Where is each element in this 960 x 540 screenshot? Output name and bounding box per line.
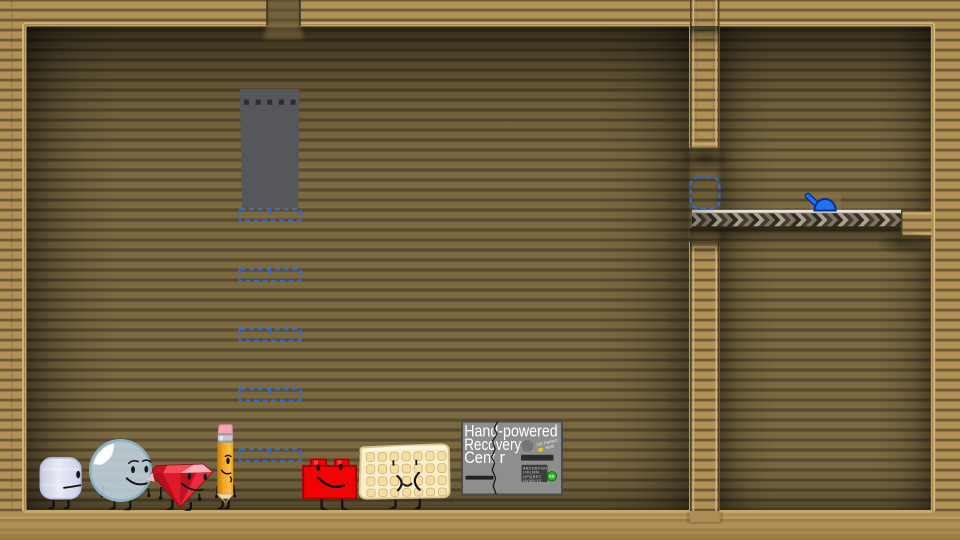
svg-text:r: r — [500, 449, 506, 467]
svg-text:Cent: Cent — [464, 449, 495, 467]
svg-text:UVWXYZ: UVWXYZ — [523, 479, 542, 483]
svg-text:GO: GO — [549, 475, 555, 479]
